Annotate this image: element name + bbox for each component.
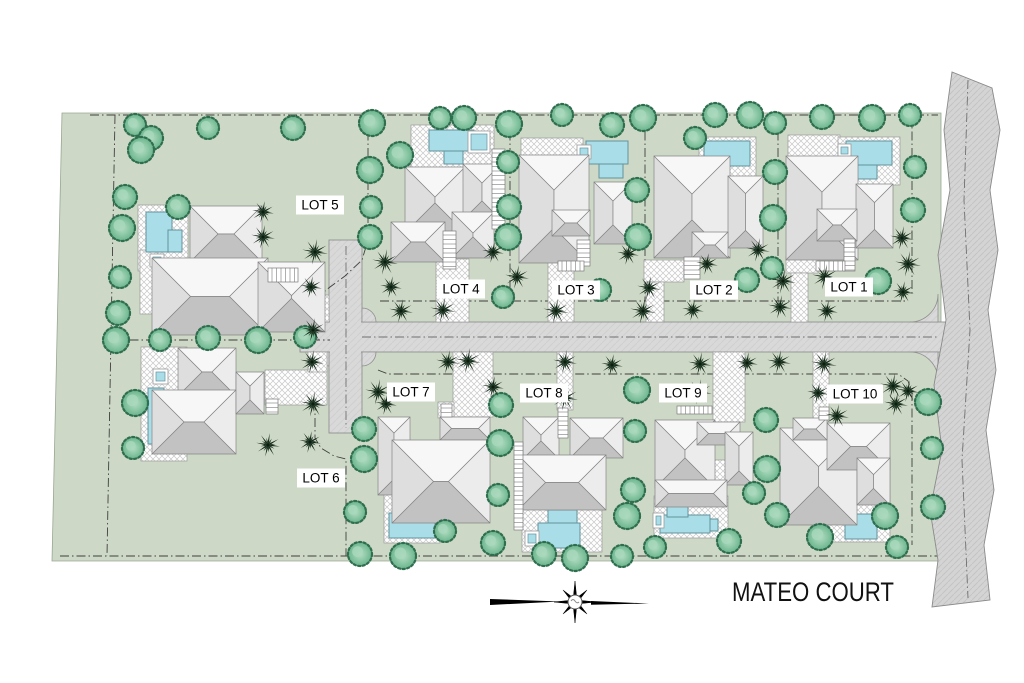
palm-trunk bbox=[309, 285, 312, 288]
tree-round bbox=[735, 268, 759, 292]
palm-trunk bbox=[781, 279, 784, 282]
palm-trunk bbox=[383, 260, 386, 263]
palm-trunk bbox=[311, 402, 314, 405]
tree-round bbox=[487, 484, 509, 506]
driveway bbox=[713, 352, 745, 422]
tree-round bbox=[128, 137, 154, 163]
pool bbox=[599, 164, 623, 178]
palm-trunk bbox=[389, 285, 392, 288]
tree-round bbox=[109, 215, 135, 241]
tree-highlight bbox=[635, 110, 647, 122]
tree-highlight bbox=[890, 540, 900, 550]
tree-round bbox=[344, 501, 366, 523]
pool bbox=[857, 165, 877, 179]
tree-highlight bbox=[438, 524, 448, 534]
palm-trunk bbox=[311, 328, 314, 331]
tree-round bbox=[684, 127, 706, 149]
tree-round bbox=[621, 478, 645, 502]
tree-round bbox=[497, 151, 519, 173]
tree-highlight bbox=[501, 116, 513, 128]
tree-round bbox=[281, 116, 305, 140]
steps bbox=[844, 239, 855, 271]
palm-trunk bbox=[491, 250, 494, 253]
tree-round bbox=[614, 503, 640, 529]
tree-highlight bbox=[501, 199, 512, 210]
lot-label-text: LOT 7 bbox=[392, 385, 429, 400]
lot-label-lot-5: LOT 5 bbox=[296, 196, 344, 215]
tree-round bbox=[360, 196, 382, 218]
palm-trunk bbox=[310, 360, 313, 363]
steps bbox=[443, 231, 456, 269]
tree-round bbox=[532, 542, 556, 566]
tree-highlight bbox=[493, 397, 504, 408]
palm-trunk bbox=[756, 248, 759, 251]
spa-water bbox=[841, 147, 848, 154]
tree-highlight bbox=[114, 220, 126, 232]
tree-round bbox=[197, 117, 219, 139]
tree-round bbox=[915, 389, 941, 415]
tree-round bbox=[495, 224, 521, 250]
tree-highlight bbox=[812, 529, 824, 541]
tree-highlight bbox=[920, 394, 932, 406]
pool bbox=[444, 151, 463, 164]
tree-round bbox=[921, 495, 945, 519]
palm-trunk bbox=[610, 363, 613, 366]
tree-round bbox=[886, 536, 908, 558]
tree-highlight bbox=[352, 546, 363, 557]
spa-water bbox=[156, 372, 165, 381]
tree-highlight bbox=[456, 110, 467, 121]
palm-trunk bbox=[441, 308, 444, 311]
tree-highlight bbox=[765, 261, 775, 271]
tree-round bbox=[899, 104, 921, 126]
tree-highlight bbox=[153, 333, 163, 343]
tree-round bbox=[624, 377, 650, 403]
lot-label-text: LOT 3 bbox=[557, 283, 594, 298]
lot-label-lot-4: LOT 4 bbox=[437, 280, 485, 299]
tree-round bbox=[859, 105, 885, 131]
steps bbox=[558, 408, 568, 438]
pool bbox=[429, 130, 474, 151]
tree-highlight bbox=[127, 395, 139, 407]
tree-highlight bbox=[905, 202, 916, 213]
tree-round bbox=[625, 178, 649, 202]
steps bbox=[441, 404, 452, 417]
tree-highlight bbox=[604, 117, 615, 128]
tree-highlight bbox=[628, 424, 638, 434]
tree-round bbox=[765, 503, 789, 527]
tree-round bbox=[810, 105, 834, 129]
tree-round bbox=[348, 542, 372, 566]
tree-highlight bbox=[925, 441, 935, 451]
driveway bbox=[791, 273, 808, 322]
tree-round bbox=[764, 112, 786, 134]
tree-round bbox=[763, 160, 787, 184]
palm-trunk bbox=[261, 210, 264, 213]
lot-label-lot-7: LOT 7 bbox=[387, 383, 435, 402]
lot-label-text: LOT 2 bbox=[695, 283, 732, 298]
palm-trunk bbox=[261, 235, 264, 238]
tree-round bbox=[149, 329, 171, 351]
tree-highlight bbox=[128, 118, 138, 128]
tree-highlight bbox=[759, 461, 771, 473]
tree-round bbox=[489, 393, 513, 417]
palm-trunk bbox=[376, 390, 379, 393]
tree-round bbox=[351, 446, 377, 472]
tree-round bbox=[357, 157, 383, 183]
tree-round bbox=[122, 390, 148, 416]
tree-round bbox=[737, 102, 763, 128]
palm-trunk bbox=[900, 236, 903, 239]
tree-round bbox=[754, 408, 778, 432]
tree-round bbox=[359, 110, 385, 136]
tree-highlight bbox=[126, 441, 136, 451]
tree-round bbox=[358, 225, 382, 249]
palm-trunk bbox=[647, 286, 650, 289]
spa-water bbox=[528, 534, 536, 543]
tree-round bbox=[904, 156, 926, 178]
lot-label-text: LOT 1 bbox=[830, 280, 867, 295]
tree-highlight bbox=[170, 199, 181, 210]
tree-highlight bbox=[285, 120, 296, 131]
tree-highlight bbox=[117, 189, 128, 200]
palm-trunk bbox=[778, 305, 781, 308]
steps bbox=[816, 261, 845, 271]
tree-highlight bbox=[908, 160, 918, 170]
tree-round bbox=[921, 437, 943, 459]
tree-highlight bbox=[536, 546, 547, 557]
tree-highlight bbox=[108, 332, 120, 344]
tree-round bbox=[551, 104, 573, 126]
tree-round bbox=[872, 503, 898, 529]
palm-trunk bbox=[384, 402, 387, 405]
tree-highlight bbox=[362, 229, 373, 240]
tree-highlight bbox=[133, 142, 145, 154]
lot-label-lot-8: LOT 8 bbox=[520, 384, 568, 403]
tree-highlight bbox=[298, 330, 308, 340]
steps bbox=[819, 407, 829, 420]
tree-round bbox=[703, 103, 727, 127]
tree-highlight bbox=[769, 507, 780, 518]
palm-trunk bbox=[563, 360, 566, 363]
tree-highlight bbox=[747, 486, 757, 496]
steps bbox=[268, 268, 298, 282]
palm-trunk bbox=[313, 250, 316, 253]
pool bbox=[710, 519, 718, 531]
tree-round bbox=[481, 531, 505, 555]
tree-highlight bbox=[356, 451, 368, 463]
tree-round bbox=[600, 113, 624, 137]
tree-round bbox=[113, 185, 137, 209]
tree-round bbox=[106, 301, 130, 325]
lot-label-lot-9: LOT 9 bbox=[659, 384, 707, 403]
palm-trunk bbox=[825, 309, 828, 312]
plan-title: MATEO COURT bbox=[732, 577, 894, 607]
palm-trunk bbox=[906, 389, 909, 392]
tree-highlight bbox=[625, 482, 636, 493]
compass-rose bbox=[490, 581, 649, 623]
palm-trunk bbox=[446, 360, 449, 363]
lot-label-text: LOT 8 bbox=[525, 386, 562, 401]
tree-highlight bbox=[201, 121, 211, 131]
palm-trunk bbox=[399, 309, 402, 312]
compass-west-wing bbox=[490, 599, 560, 605]
spa-water bbox=[471, 134, 487, 150]
palm-trunk bbox=[641, 309, 644, 312]
tree-round bbox=[497, 195, 521, 219]
lot-label-text: LOT 4 bbox=[442, 282, 480, 297]
tree-highlight bbox=[364, 115, 376, 127]
tree-highlight bbox=[767, 164, 778, 175]
lot-label-lot-3: LOT 3 bbox=[552, 281, 600, 300]
tree-highlight bbox=[648, 540, 658, 550]
tree-highlight bbox=[629, 382, 641, 394]
pool bbox=[660, 515, 710, 533]
tree-highlight bbox=[630, 229, 642, 241]
palm-trunk bbox=[816, 391, 819, 394]
tree-highlight bbox=[758, 412, 769, 423]
palm-trunk bbox=[515, 275, 518, 278]
tree-highlight bbox=[491, 488, 501, 498]
tree-round bbox=[754, 456, 780, 482]
tree-highlight bbox=[877, 508, 889, 520]
pool bbox=[548, 510, 577, 524]
tree-round bbox=[901, 198, 925, 222]
tree-round bbox=[760, 205, 786, 231]
lot-label-text: LOT 10 bbox=[833, 387, 878, 402]
palm-trunk bbox=[491, 385, 494, 388]
tree-highlight bbox=[485, 535, 496, 546]
tree-round bbox=[166, 195, 190, 219]
palm-trunk bbox=[894, 402, 897, 405]
tree-highlight bbox=[721, 533, 732, 544]
lot-label-lot-10: LOT 10 bbox=[827, 385, 883, 404]
tree-highlight bbox=[496, 290, 506, 300]
tree-highlight bbox=[567, 550, 579, 562]
tree-highlight bbox=[864, 110, 876, 122]
palm-trunk bbox=[777, 360, 780, 363]
tree-highlight bbox=[364, 200, 374, 210]
palm-trunk bbox=[901, 290, 904, 293]
tree-highlight bbox=[555, 108, 565, 118]
tree-round bbox=[624, 420, 646, 442]
tree-highlight bbox=[742, 107, 754, 119]
tree-highlight bbox=[501, 155, 511, 165]
tree-highlight bbox=[500, 229, 512, 241]
tree-round bbox=[496, 111, 522, 137]
compass-hub bbox=[568, 595, 582, 609]
tree-round bbox=[390, 543, 416, 569]
tree-round bbox=[387, 142, 413, 168]
tree-highlight bbox=[433, 111, 443, 121]
tree-highlight bbox=[356, 421, 367, 432]
pool bbox=[168, 230, 182, 252]
tree-highlight bbox=[619, 508, 631, 520]
palm-trunk bbox=[745, 361, 748, 364]
tree-highlight bbox=[739, 272, 750, 283]
palm-trunk bbox=[698, 362, 701, 365]
tree-highlight bbox=[925, 499, 936, 510]
palm-trunk bbox=[626, 252, 629, 255]
palm-trunk bbox=[266, 443, 269, 446]
site-plan: LOT 1LOT 2LOT 3LOT 4LOT 5LOT 6LOT 7LOT 8… bbox=[0, 0, 1024, 683]
tree-round bbox=[717, 529, 741, 553]
tree-highlight bbox=[395, 548, 407, 560]
palm-trunk bbox=[822, 362, 825, 365]
tree-highlight bbox=[348, 505, 358, 515]
palm-trunk bbox=[466, 359, 469, 362]
tree-highlight bbox=[110, 305, 121, 316]
tree-round bbox=[103, 327, 129, 353]
tree-highlight bbox=[688, 131, 698, 141]
tree-round bbox=[429, 107, 451, 129]
steps bbox=[684, 257, 700, 279]
tree-highlight bbox=[113, 270, 123, 280]
tree-highlight bbox=[392, 147, 404, 159]
spa-water bbox=[656, 516, 661, 525]
lot-label-lot-1: LOT 1 bbox=[825, 278, 873, 297]
tree-round bbox=[743, 482, 765, 504]
tree-round bbox=[807, 524, 833, 550]
palm-trunk bbox=[891, 384, 894, 387]
tree-highlight bbox=[629, 182, 640, 193]
tree-round bbox=[452, 106, 476, 130]
lot-label-text: LOT 6 bbox=[302, 471, 339, 486]
lot-label-lot-6: LOT 6 bbox=[297, 469, 345, 488]
driveway bbox=[644, 260, 684, 282]
pool bbox=[586, 141, 628, 164]
tree-highlight bbox=[707, 107, 718, 118]
tree-round bbox=[630, 105, 656, 131]
tree-round bbox=[196, 326, 220, 350]
palm-trunk bbox=[906, 262, 909, 265]
tree-highlight bbox=[250, 332, 262, 344]
palm-trunk bbox=[554, 309, 557, 312]
lot-label-lot-2: LOT 2 bbox=[690, 281, 738, 300]
tree-round bbox=[611, 545, 633, 567]
tree-round bbox=[122, 437, 144, 459]
palm-trunk bbox=[835, 414, 838, 417]
tree-highlight bbox=[765, 210, 777, 222]
tree-highlight bbox=[492, 435, 504, 447]
lot-label-text: LOT 9 bbox=[664, 386, 701, 401]
palm-trunk bbox=[691, 308, 694, 311]
tree-round bbox=[245, 327, 271, 353]
tree-round bbox=[109, 266, 131, 288]
site-plan-page: LOT 1LOT 2LOT 3LOT 4LOT 5LOT 6LOT 7LOT 8… bbox=[0, 0, 1024, 683]
tree-highlight bbox=[615, 549, 625, 559]
tree-highlight bbox=[814, 109, 825, 120]
lot-label-text: LOT 5 bbox=[301, 198, 338, 213]
tree-round bbox=[487, 430, 513, 456]
palm-trunk bbox=[705, 262, 708, 265]
tree-highlight bbox=[362, 162, 374, 174]
tree-highlight bbox=[768, 116, 778, 126]
tree-round bbox=[492, 286, 514, 308]
tree-highlight bbox=[903, 108, 913, 118]
tree-round bbox=[562, 545, 588, 571]
tree-highlight bbox=[200, 330, 211, 341]
tree-round bbox=[434, 520, 456, 542]
tree-round bbox=[352, 417, 376, 441]
compass-east-wing bbox=[591, 601, 649, 605]
tree-round bbox=[644, 536, 666, 558]
palm-trunk bbox=[308, 440, 311, 443]
